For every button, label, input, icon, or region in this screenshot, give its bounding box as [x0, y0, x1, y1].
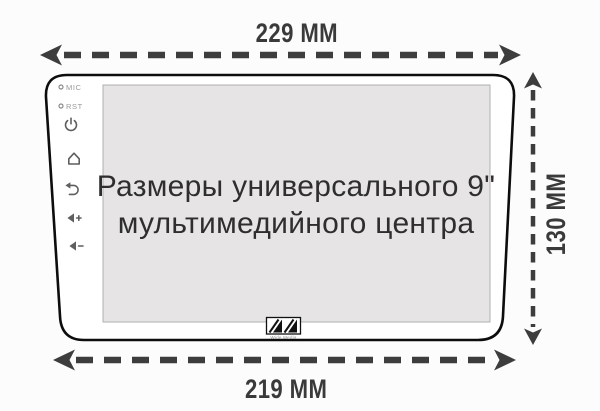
brand-logo-label: Wide Media: [270, 335, 296, 340]
mic-label: MIC: [66, 83, 82, 92]
screen-title-line2: мультимедийного центра: [118, 207, 475, 240]
height-label: 130 ММ: [542, 173, 572, 255]
bottom-width-arrowhead-right-icon: [494, 350, 516, 371]
screen-title-line1: Размеры универсального 9": [97, 170, 496, 203]
brand-logo: Wide Media: [267, 318, 301, 341]
height-arrowhead-top-icon: [524, 72, 542, 89]
top-width-label: 229 ММ: [256, 19, 338, 49]
height-arrowhead-bottom-icon: [524, 329, 542, 346]
top-width-arrowhead-left-icon: [40, 45, 62, 66]
device-screen: [103, 85, 490, 322]
dimension-diagram-page: 229 ММ Размеры универсального 9" мультим…: [0, 0, 600, 411]
dimension-diagram: 229 ММ Размеры универсального 9" мультим…: [0, 0, 600, 411]
top-width-arrowhead-right-icon: [499, 45, 521, 66]
bottom-width-arrowhead-left-icon: [53, 350, 75, 371]
reset-label: RST: [66, 102, 83, 111]
top-width-dimension: 229 ММ: [40, 19, 521, 65]
height-dimension: 130 ММ: [524, 72, 572, 345]
bottom-width-dimension: 219 ММ: [53, 350, 516, 405]
bottom-width-label: 219 ММ: [245, 375, 327, 405]
